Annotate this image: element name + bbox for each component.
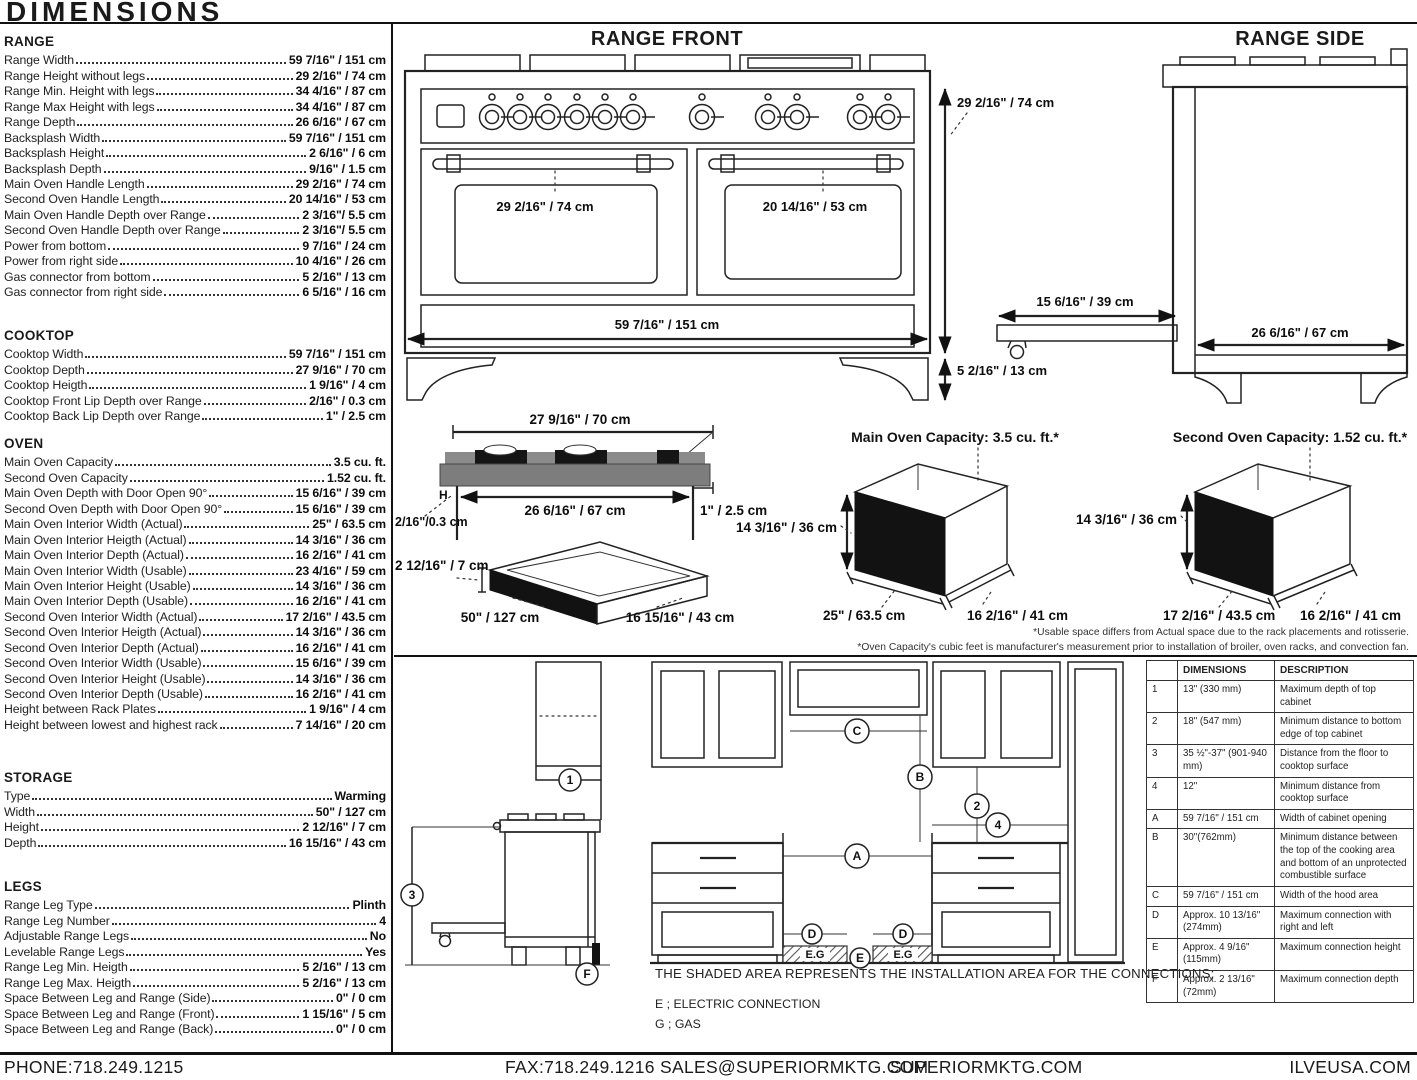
spec-value: 1.52 cu. ft. bbox=[327, 471, 386, 485]
spec-rows: Cooktop Width 59 7/16" / 151 cm Cooktop … bbox=[4, 346, 386, 423]
leader-dots bbox=[203, 634, 292, 636]
range-height-dim: 29 2/16" / 74 cm bbox=[957, 95, 1054, 110]
table-cell-description: Width of cabinet opening bbox=[1275, 809, 1414, 829]
table-header-blank bbox=[1147, 661, 1178, 681]
table-cell-dimension: 35 ½"-37" (901-940 mm) bbox=[1178, 745, 1275, 777]
spec-section-oven: OVEN Main Oven Capacity 3.5 cu. ft. Seco… bbox=[4, 436, 386, 732]
second-oven-capacity-title: Second Oven Capacity: 1.52 cu. ft.* bbox=[1173, 429, 1408, 445]
leader-dots bbox=[199, 619, 282, 621]
spec-value: 29 2/16" / 74 cm bbox=[296, 69, 386, 83]
table-cell-description: Maximum connection with right and left bbox=[1275, 906, 1414, 938]
install-markers: 1 3 F C B 2 4 A D D E bbox=[401, 719, 1010, 985]
spec-value: 15 6/16" / 39 cm bbox=[296, 502, 386, 516]
install-side-view bbox=[405, 662, 610, 965]
table-row: 3 35 ½"-37" (901-940 mm) Distance from t… bbox=[1147, 745, 1414, 777]
section-header: COOKTOP bbox=[4, 328, 386, 343]
footer-email[interactable]: SALES@SUPERIORMKTG.COM bbox=[660, 1057, 928, 1078]
spec-value: 16 2/16" / 41 cm bbox=[296, 641, 386, 655]
spec-label: Power from bottom bbox=[4, 239, 106, 253]
spec-value: 2 3/16"/ 5.5 cm bbox=[302, 223, 386, 237]
second-oven-height-dim: 14 3/16" / 36 cm bbox=[1076, 512, 1177, 527]
leader-dots bbox=[85, 356, 286, 358]
footer-fax: FAX:718.249.1216 bbox=[505, 1057, 655, 1078]
main-oven-interior-face bbox=[855, 492, 945, 596]
spec-row: Range Depth 26 6/16" / 67 cm bbox=[4, 114, 386, 129]
spec-label: Levelable Range Legs bbox=[4, 945, 124, 959]
top-rule bbox=[0, 22, 1417, 24]
cooktop-and-oven-drawings: 27 9/16" / 70 cm H 26 6/16" / 67 cm bbox=[395, 400, 1417, 655]
spec-row: Range Height without legs 29 2/16" / 74 … bbox=[4, 67, 386, 82]
spec-label: Main Oven Interior Width (Usable) bbox=[4, 564, 187, 578]
shelf-extension-dim: 15 6/16" / 39 cm bbox=[1036, 294, 1133, 309]
leader-dots bbox=[77, 124, 292, 126]
spec-value: 4 bbox=[379, 914, 386, 928]
marker-3: 3 bbox=[401, 884, 423, 906]
control-display bbox=[437, 105, 464, 127]
leader-dots bbox=[201, 650, 293, 652]
spec-label: Backsplash Depth bbox=[4, 162, 102, 176]
spec-row: Range Max Height with legs 34 4/16" / 87… bbox=[4, 98, 386, 113]
storage-width-dim: 50" / 127 cm bbox=[461, 610, 539, 625]
section-header: RANGE bbox=[4, 34, 386, 49]
table-cell-description: Maximum depth of top cabinet bbox=[1275, 681, 1414, 713]
leader-dots bbox=[204, 403, 307, 405]
spec-label: Second Oven Handle Length bbox=[4, 192, 159, 206]
second-oven-interior-face bbox=[1195, 492, 1273, 596]
leader-dots bbox=[147, 78, 293, 80]
spec-sheet-page: DIMENSIONS RANGE Range Width 59 7/16" / … bbox=[0, 0, 1417, 1080]
spec-row: Second Oven Interior Height (Usable) 14 … bbox=[4, 670, 386, 685]
marker-1: 1 bbox=[559, 769, 581, 791]
range-front-side-drawing: RANGE FRONT RANGE SIDE bbox=[395, 25, 1417, 410]
svg-text:C: C bbox=[853, 724, 862, 738]
knob-icon bbox=[756, 94, 791, 130]
table-cell-dimension: 18" (547 mm) bbox=[1178, 713, 1275, 745]
spec-row: Main Oven Depth with Door Open 90° 15 6/… bbox=[4, 485, 386, 500]
marker-2: 2 bbox=[965, 794, 989, 818]
spec-label: Cooktop Heigth bbox=[4, 378, 87, 392]
cooktop-profile-illustration: 27 9/16" / 70 cm H 26 6/16" / 67 cm bbox=[395, 412, 767, 540]
leader-dots bbox=[108, 248, 299, 250]
leader-dots bbox=[193, 588, 293, 590]
table-row: C 59 7/16" / 151 cm Width of the hood ar… bbox=[1147, 886, 1414, 906]
table-cell-id: C bbox=[1147, 886, 1178, 906]
section-header: OVEN bbox=[4, 436, 386, 451]
spec-row: Second Oven Handle Depth over Range 2 3/… bbox=[4, 222, 386, 237]
leader-dots bbox=[112, 923, 377, 925]
spec-row: Depth 16 15/16" / 43 cm bbox=[4, 834, 386, 849]
footer-rule bbox=[0, 1052, 1417, 1055]
svg-text:4: 4 bbox=[995, 818, 1002, 832]
spec-value: 25" / 63.5 cm bbox=[312, 517, 386, 531]
leader-dots bbox=[106, 155, 306, 157]
spec-row: Cooktop Heigth 1 9/16" / 4 cm bbox=[4, 377, 386, 392]
spec-row: Power from bottom 9 7/16" / 24 cm bbox=[4, 237, 386, 252]
install-front-view: E.G E.G bbox=[650, 662, 1125, 963]
leader-dots bbox=[147, 186, 293, 188]
spec-section-legs: LEGS Range Leg Type Plinth Range Leg Num… bbox=[4, 879, 386, 1036]
spec-rows: Type Warming Width 50" / 127 cm Height 2… bbox=[4, 788, 386, 850]
spec-row: Backsplash Width 59 7/16" / 151 cm bbox=[4, 129, 386, 144]
table-cell-description: Maximum connection height bbox=[1275, 938, 1414, 970]
spec-row: Power from right side 10 4/16" / 26 cm bbox=[4, 253, 386, 268]
table-cell-id: F bbox=[1147, 970, 1178, 1002]
svg-text:E: E bbox=[856, 951, 864, 965]
leader-dots bbox=[190, 603, 293, 605]
caster-wheel-icon bbox=[1011, 346, 1024, 359]
spec-label: Cooktop Width bbox=[4, 347, 83, 361]
cooktop-slab bbox=[440, 464, 710, 486]
spec-row: Range Min. Height with legs 34 4/16" / 8… bbox=[4, 83, 386, 98]
spec-section-storage: STORAGE Type Warming Width 50" / 127 cm … bbox=[4, 770, 386, 850]
leader-dots bbox=[184, 526, 309, 528]
leader-dots bbox=[157, 109, 293, 111]
main-oven-door bbox=[421, 149, 687, 295]
section-header: STORAGE bbox=[4, 770, 386, 785]
table-body: 1 13" (330 mm) Maximum depth of top cabi… bbox=[1147, 681, 1414, 1003]
spec-label: Adjustable Range Legs bbox=[4, 929, 129, 943]
spec-label: Main Oven Interior Heigth (Actual) bbox=[4, 533, 187, 547]
spec-label: Range Leg Max. Heigth bbox=[4, 976, 131, 990]
spec-label: Main Oven Interior Depth (Usable) bbox=[4, 594, 188, 608]
table-row: B 30"(762mm) Minimum distance between th… bbox=[1147, 829, 1414, 886]
main-oven-capacity-title: Main Oven Capacity: 3.5 cu. ft.* bbox=[851, 429, 1059, 445]
spec-row: Cooktop Depth 27 9/16" / 70 cm bbox=[4, 361, 386, 376]
spec-row: Main Oven Interior Width (Usable) 23 4/1… bbox=[4, 562, 386, 577]
spec-label: Space Between Leg and Range (Front) bbox=[4, 1007, 214, 1021]
leader-dots bbox=[216, 1016, 299, 1018]
leader-dots bbox=[189, 542, 293, 544]
range-side-illustration: 26 6/16" / 67 cm 15 6/16" / 39 cm bbox=[997, 49, 1407, 403]
section-header: LEGS bbox=[4, 879, 386, 894]
table-cell-dimension: 59 7/16" / 151 cm bbox=[1178, 886, 1275, 906]
spec-value: 5 2/16" / 13 cm bbox=[302, 976, 386, 990]
spec-value: 59 7/16" / 151 cm bbox=[289, 347, 386, 361]
leader-dots bbox=[37, 814, 313, 816]
marker-F: F bbox=[576, 963, 598, 985]
spec-value: 7 14/16" / 20 cm bbox=[296, 718, 386, 732]
back-lip-dim: 1" / 2.5 cm bbox=[700, 503, 767, 518]
leader-dots bbox=[153, 279, 300, 281]
table-cell-dimension: 30"(762mm) bbox=[1178, 829, 1275, 886]
leader-dots bbox=[133, 985, 299, 987]
spec-value: 15 6/16" / 39 cm bbox=[296, 656, 386, 670]
table-header-dimensions: DIMENSIONS bbox=[1178, 661, 1275, 681]
leader-dots bbox=[161, 201, 285, 203]
spec-label: Second Oven Interior Depth (Usable) bbox=[4, 687, 203, 701]
spec-label: Range Leg Number bbox=[4, 914, 110, 928]
spec-label: Height between lowest and highest rack bbox=[4, 718, 218, 732]
table-row: F Approx. 2 13/16" (72mm) Maximum connec… bbox=[1147, 970, 1414, 1002]
leader-dots bbox=[76, 62, 286, 64]
leader-dots bbox=[207, 681, 292, 683]
leg-height-dim: 5 2/16" / 13 cm bbox=[957, 363, 1047, 378]
spec-rows: Range Leg Type Plinth Range Leg Number 4… bbox=[4, 897, 386, 1036]
spec-value: 9 7/16" / 24 cm bbox=[302, 239, 386, 253]
table-header-description: DESCRIPTION bbox=[1275, 661, 1414, 681]
leader-dots bbox=[220, 727, 293, 729]
spec-row: Second Oven Interior Width (Actual) 17 2… bbox=[4, 608, 386, 623]
spec-label: Range Leg Min. Heigth bbox=[4, 960, 128, 974]
spec-label: Main Oven Interior Height (Usable) bbox=[4, 579, 191, 593]
main-oven-width-dim: 25" / 63.5 cm bbox=[823, 608, 905, 623]
spec-row: Adjustable Range Legs No bbox=[4, 928, 386, 943]
footnote-line: *Oven Capacity's cubic feet is manufactu… bbox=[857, 641, 1409, 656]
leader-dots bbox=[89, 387, 306, 389]
spec-label: Second Oven Interior Height (Usable) bbox=[4, 672, 205, 686]
spec-row: Gas connector from bottom 5 2/16" / 13 c… bbox=[4, 268, 386, 283]
leader-dots bbox=[126, 954, 362, 956]
spec-value: 29 2/16" / 74 cm bbox=[296, 177, 386, 191]
second-oven-capacity-illustration: Second Oven Capacity: 1.52 cu. ft.* 14 3… bbox=[1076, 429, 1408, 623]
svg-text:B: B bbox=[916, 770, 925, 784]
table-cell-dimension: Approx. 4 9/16" (115mm) bbox=[1178, 938, 1275, 970]
spec-row: Second Oven Interior Depth (Actual) 16 2… bbox=[4, 639, 386, 654]
spec-row: Backsplash Height 2 6/16" / 6 cm bbox=[4, 145, 386, 160]
connection-depth-area bbox=[592, 943, 600, 965]
spec-value: 14 3/16" / 36 cm bbox=[296, 625, 386, 639]
svg-text:3: 3 bbox=[409, 888, 416, 902]
second-oven-handle bbox=[709, 159, 903, 169]
front-right-leg bbox=[840, 358, 928, 400]
leader-dots bbox=[203, 665, 292, 667]
spec-value: 1 15/16" / 5 cm bbox=[302, 1007, 386, 1021]
spec-row: Cooktop Width 59 7/16" / 151 cm bbox=[4, 346, 386, 361]
spec-section-range: RANGE Range Width 59 7/16" / 151 cm Rang… bbox=[4, 34, 386, 299]
svg-text:1: 1 bbox=[567, 773, 574, 787]
spec-value: 23 4/16" / 59 cm bbox=[296, 564, 386, 578]
spec-value: 0" / 0 cm bbox=[336, 991, 386, 1005]
spec-value: 2 6/16" / 6 cm bbox=[309, 146, 386, 160]
second-handle-dim: 20 14/16" / 53 cm bbox=[763, 199, 867, 214]
table-cell-id: 4 bbox=[1147, 777, 1178, 809]
spec-label: Gas connector from bottom bbox=[4, 270, 151, 284]
leader-dots bbox=[223, 232, 300, 234]
knob-icon bbox=[876, 94, 911, 130]
leader-dots bbox=[130, 480, 324, 482]
leader-dots bbox=[215, 1031, 333, 1033]
spec-label: Space Between Leg and Range (Side) bbox=[4, 991, 210, 1005]
side-back-leg bbox=[1361, 373, 1407, 403]
spec-row: Space Between Leg and Range (Back) 0" / … bbox=[4, 1021, 386, 1036]
spec-row: Range Width 59 7/16" / 151 cm bbox=[4, 52, 386, 67]
spec-value: 0" / 0 cm bbox=[336, 1022, 386, 1036]
spec-label: Main Oven Handle Depth over Range bbox=[4, 208, 206, 222]
spec-label: Second Oven Interior Width (Usable) bbox=[4, 656, 201, 670]
leader-dots bbox=[120, 263, 293, 265]
installation-dimensions-table: DIMENSIONS DESCRIPTION 1 13" (330 mm) Ma… bbox=[1146, 660, 1414, 1003]
spec-value: 14 3/16" / 36 cm bbox=[296, 579, 386, 593]
spec-label: Second Oven Interior Heigth (Actual) bbox=[4, 625, 201, 639]
spec-row: Range Leg Max. Heigth 5 2/16" / 13 cm bbox=[4, 974, 386, 989]
table-row: A 59 7/16" / 151 cm Width of cabinet ope… bbox=[1147, 809, 1414, 829]
spec-row: Main Oven Handle Length 29 2/16" / 74 cm bbox=[4, 176, 386, 191]
spec-value: 14 3/16" / 36 cm bbox=[296, 533, 386, 547]
spec-label: Second Oven Depth with Door Open 90° bbox=[4, 502, 222, 516]
spec-row: Range Leg Type Plinth bbox=[4, 897, 386, 912]
spec-row: Second Oven Interior Width (Usable) 15 6… bbox=[4, 655, 386, 670]
spec-label: Height between Rack Plates bbox=[4, 702, 156, 716]
spec-value: 2 12/16" / 7 cm bbox=[302, 820, 386, 834]
svg-text:2: 2 bbox=[974, 799, 981, 813]
leader-dots bbox=[41, 829, 299, 831]
spec-row: Second Oven Interior Heigth (Actual) 14 … bbox=[4, 624, 386, 639]
legend-gas: G ; GAS bbox=[655, 1017, 701, 1031]
footer-website[interactable]: SUPERIORMKTG.COM bbox=[890, 1057, 1082, 1078]
marker-4: 4 bbox=[986, 813, 1010, 837]
spec-value: 15 6/16" / 39 cm bbox=[296, 486, 386, 500]
leader-dots bbox=[202, 418, 323, 420]
spec-value: 2 3/16"/ 5.5 cm bbox=[302, 208, 386, 222]
spec-label: Height bbox=[4, 820, 39, 834]
marker-C: C bbox=[845, 719, 869, 743]
spec-row: Main Oven Capacity 3.5 cu. ft. bbox=[4, 454, 386, 469]
storage-height-dim: 2 12/16" / 7 cm bbox=[395, 558, 488, 573]
spec-value: 34 4/16" / 87 cm bbox=[296, 100, 386, 114]
leader-dots bbox=[32, 798, 331, 800]
leader-dots bbox=[131, 938, 367, 940]
spec-row: Main Oven Interior Heigth (Actual) 14 3/… bbox=[4, 531, 386, 546]
leader-dots bbox=[224, 511, 293, 513]
spec-row: Main Oven Interior Depth (Usable) 16 2/1… bbox=[4, 593, 386, 608]
table-cell-dimension: 59 7/16" / 151 cm bbox=[1178, 809, 1275, 829]
spec-row: Second Oven Handle Length 20 14/16" / 53… bbox=[4, 191, 386, 206]
marker-A: A bbox=[845, 844, 869, 868]
spec-value: 17 2/16" / 43.5 cm bbox=[286, 610, 386, 624]
spec-value: 1" / 2.5 cm bbox=[326, 409, 386, 423]
spec-value: Yes bbox=[365, 945, 386, 959]
spec-label: Second Oven Capacity bbox=[4, 471, 128, 485]
spec-label: Range Depth bbox=[4, 115, 75, 129]
spec-label: Main Oven Capacity bbox=[4, 455, 113, 469]
spec-row: Main Oven Interior Height (Usable) 14 3/… bbox=[4, 578, 386, 593]
table-cell-id: 1 bbox=[1147, 681, 1178, 713]
spec-value: 59 7/16" / 151 cm bbox=[289, 53, 386, 67]
spec-row: Cooktop Back Lip Depth over Range 1" / 2… bbox=[4, 408, 386, 423]
spec-value: 9/16" / 1.5 cm bbox=[309, 162, 386, 176]
knob-icon bbox=[621, 94, 656, 130]
table-cell-dimension: Approx. 10 13/16" (274mm) bbox=[1178, 906, 1275, 938]
footer-phone: PHONE:718.249.1215 bbox=[4, 1057, 184, 1078]
spec-label: Cooktop Depth bbox=[4, 363, 85, 377]
spec-label: Gas connector from right side bbox=[4, 285, 162, 299]
table-row: 2 18" (547 mm) Minimum distance to botto… bbox=[1147, 713, 1414, 745]
spec-label: Cooktop Back Lip Depth over Range bbox=[4, 409, 200, 423]
pullout-shelf bbox=[997, 325, 1177, 341]
spec-row: Gas connector from right side 6 5/16" / … bbox=[4, 284, 386, 299]
second-oven-width-dim: 17 2/16" / 43.5 cm bbox=[1163, 608, 1275, 623]
spec-label: Backsplash Width bbox=[4, 131, 100, 145]
spec-value: 2/16" / 0.3 cm bbox=[309, 394, 386, 408]
spec-label: Second Oven Handle Depth over Range bbox=[4, 223, 221, 237]
spec-label: Main Oven Handle Length bbox=[4, 177, 145, 191]
table-cell-dimension: Approx. 2 13/16" (72mm) bbox=[1178, 970, 1275, 1002]
spec-value: 27 9/16" / 70 cm bbox=[296, 363, 386, 377]
side-front-leg bbox=[1195, 373, 1241, 403]
spec-value: 26 6/16" / 67 cm bbox=[296, 115, 386, 129]
spec-label: Cooktop Front Lip Depth over Range bbox=[4, 394, 202, 408]
front-left-leg bbox=[407, 358, 495, 400]
footnote-line: *Usable space differs from Actual space … bbox=[857, 626, 1409, 641]
table-cell-description: Minimum distance from cooktop surface bbox=[1275, 777, 1414, 809]
table-row: 1 13" (330 mm) Maximum depth of top cabi… bbox=[1147, 681, 1414, 713]
spec-label: Range Max Height with legs bbox=[4, 100, 155, 114]
leader-dots bbox=[186, 557, 293, 559]
table-cell-description: Minimum distance to bottom edge of top c… bbox=[1275, 713, 1414, 745]
table-cell-id: A bbox=[1147, 809, 1178, 829]
main-handle-dim: 29 2/16" / 74 cm bbox=[496, 199, 593, 214]
spec-row: Cooktop Front Lip Depth over Range 2/16"… bbox=[4, 392, 386, 407]
backsplash bbox=[1391, 49, 1407, 65]
marker-B: B bbox=[908, 765, 932, 789]
footer-brand-site[interactable]: ILVEUSA.COM bbox=[1289, 1057, 1411, 1078]
table-header-row: DIMENSIONS DESCRIPTION bbox=[1147, 661, 1414, 681]
table-cell-id: 2 bbox=[1147, 713, 1178, 745]
spec-section-cooktop: COOKTOP Cooktop Width 59 7/16" / 151 cm … bbox=[4, 328, 386, 423]
table-cell-dimension: 13" (330 mm) bbox=[1178, 681, 1275, 713]
main-oven-depth-dim: 16 2/16" / 41 cm bbox=[967, 608, 1068, 623]
spec-value: 1 9/16" / 4 cm bbox=[309, 702, 386, 716]
second-oven-door bbox=[697, 149, 914, 295]
spec-value: 34 4/16" / 87 cm bbox=[296, 84, 386, 98]
spec-label: Range Leg Type bbox=[4, 898, 93, 912]
spec-value: 14 3/16" / 36 cm bbox=[296, 672, 386, 686]
knob-icon bbox=[785, 94, 820, 130]
leader-dots bbox=[38, 845, 286, 847]
spec-label: Width bbox=[4, 805, 35, 819]
h-label: H bbox=[439, 488, 448, 502]
svg-text:A: A bbox=[853, 849, 862, 863]
knob-icon bbox=[536, 94, 571, 130]
marker-E: E bbox=[850, 948, 870, 968]
table-row: E Approx. 4 9/16" (115mm) Maximum connec… bbox=[1147, 938, 1414, 970]
table-row: D Approx. 10 13/16" (274mm) Maximum conn… bbox=[1147, 906, 1414, 938]
leader-dots bbox=[95, 907, 350, 909]
control-knobs bbox=[480, 94, 911, 130]
leader-dots bbox=[87, 372, 293, 374]
spec-value: 5 2/16" / 13 cm bbox=[302, 270, 386, 284]
installation-note: THE SHADED AREA REPRESENTS THE INSTALLAT… bbox=[655, 966, 1214, 981]
table-cell-id: 3 bbox=[1147, 745, 1178, 777]
leader-dots bbox=[158, 711, 306, 713]
spec-label: Main Oven Depth with Door Open 90° bbox=[4, 486, 207, 500]
leader-dots bbox=[189, 573, 293, 575]
spec-row: Main Oven Interior Width (Actual) 25" / … bbox=[4, 516, 386, 531]
spec-label: Second Oven Interior Width (Actual) bbox=[4, 610, 197, 624]
hatch-label: E.G bbox=[894, 949, 913, 961]
spec-row: Range Leg Min. Heigth 5 2/16" / 13 cm bbox=[4, 959, 386, 974]
hatch-label: E.G bbox=[806, 949, 825, 961]
leader-dots bbox=[115, 464, 331, 466]
main-oven-height-dim: 14 3/16" / 36 cm bbox=[736, 520, 837, 535]
spec-value: 50" / 127 cm bbox=[316, 805, 386, 819]
table-row: 4 12" Minimum distance from cooktop surf… bbox=[1147, 777, 1414, 809]
spec-label: Depth bbox=[4, 836, 36, 850]
spec-value: Warming bbox=[335, 789, 386, 803]
range-front-title: RANGE FRONT bbox=[591, 28, 743, 50]
spec-value: 16 2/16" / 41 cm bbox=[296, 548, 386, 562]
range-side-title: RANGE SIDE bbox=[1235, 28, 1364, 50]
leader-dots bbox=[156, 93, 292, 95]
table-cell-id: B bbox=[1147, 829, 1178, 886]
svg-text:D: D bbox=[899, 927, 908, 941]
spec-label: Range Height without legs bbox=[4, 69, 145, 83]
spec-row: Backsplash Depth 9/16" / 1.5 cm bbox=[4, 160, 386, 175]
leader-dots bbox=[102, 140, 286, 142]
spec-label: Main Oven Interior Depth (Actual) bbox=[4, 548, 184, 562]
spec-label: Second Oven Interior Depth (Actual) bbox=[4, 641, 199, 655]
svg-text:F: F bbox=[583, 967, 590, 981]
